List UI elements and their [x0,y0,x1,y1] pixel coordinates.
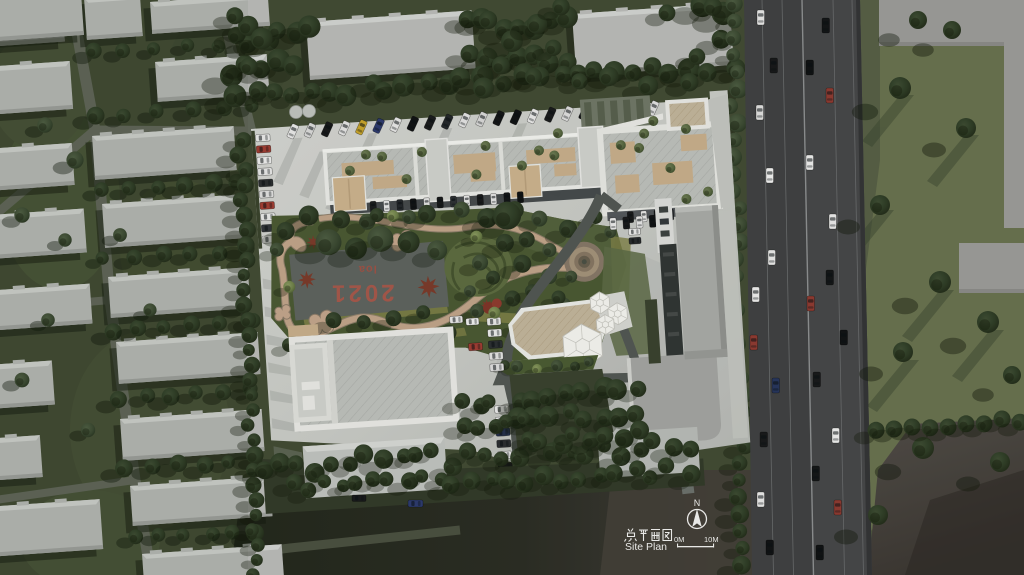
svg-text:N: N [694,498,701,508]
svg-text:10M: 10M [704,535,719,544]
svg-text:Site Plan: Site Plan [625,541,667,553]
svg-text:0M: 0M [674,535,684,544]
